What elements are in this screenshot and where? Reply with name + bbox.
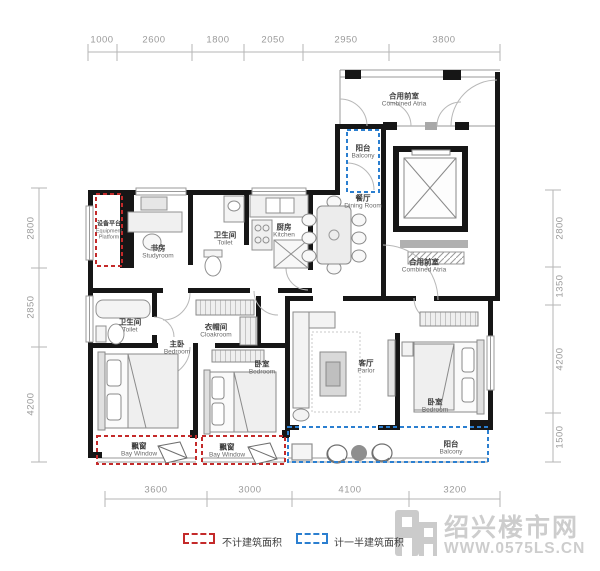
room-label-kitchen: 厨房 Kitchen xyxy=(273,223,295,240)
dim-left-3: 4200 xyxy=(26,392,37,415)
dim-bottom-2: 3000 xyxy=(238,485,261,496)
floor-plan-page: 1000 2600 1800 2050 2950 3800 3600 3000 … xyxy=(0,0,600,571)
room-label-bedroom-3: 卧室 Bedroom xyxy=(422,398,448,415)
legend-excluded-area-label: 不计建筑面积 xyxy=(222,534,282,549)
room-label-studyroom: 书房 Studyroom xyxy=(142,244,173,261)
dim-right-1: 2800 xyxy=(555,216,566,239)
furniture-master-bed xyxy=(98,352,178,430)
room-label-master-bedroom: 主卧 Bedroom xyxy=(164,340,190,357)
room-label-combined-atria-right: 合用前室 Combined Atria xyxy=(402,258,446,275)
site-logo-icon xyxy=(395,510,437,556)
dim-top-3: 1800 xyxy=(206,35,229,46)
dim-top-2: 2600 xyxy=(142,35,165,46)
legend-excluded-area-swatch xyxy=(183,533,215,544)
room-label-equipment-platform: 设备平台 Equipment Platform xyxy=(91,221,127,240)
room-label-toilet-2: 卫生间 Toilet xyxy=(119,318,142,335)
room-label-bedroom-2: 卧室 Bedroom xyxy=(249,360,275,377)
room-label-combined-atria-top: 合用前室 Combined Atria xyxy=(382,92,426,109)
dim-right-4: 1500 xyxy=(555,425,566,448)
dim-right-2: 1350 xyxy=(555,274,566,297)
room-label-bay-window-1: 飘窗 Bay Window xyxy=(121,442,157,459)
dim-top-4: 2050 xyxy=(261,35,284,46)
room-label-dining-room: 餐厅 Dining Room xyxy=(344,194,382,211)
room-label-cloakroom: 衣帽间 Cloakroom xyxy=(200,323,231,340)
dim-top-1: 1000 xyxy=(90,35,113,46)
dim-bottom-1: 3600 xyxy=(144,485,167,496)
floor-plan-drawing xyxy=(0,0,600,571)
legend-half-area-label: 计一半建筑面积 xyxy=(334,534,404,549)
watermark-site-name: 绍兴楼市网 xyxy=(444,508,579,544)
dim-bottom-4: 3200 xyxy=(443,485,466,496)
elevator xyxy=(404,150,456,218)
dim-bottom-3: 4100 xyxy=(338,485,361,496)
furniture-balcony xyxy=(292,444,392,463)
furniture-study xyxy=(128,197,182,250)
room-label-parlor: 客厅 Parlor xyxy=(357,359,374,376)
room-label-bay-window-2: 飘窗 Bay Window xyxy=(209,443,245,460)
dim-top-5: 2950 xyxy=(334,35,357,46)
room-label-balcony-bottom: 阳台 Balcony xyxy=(439,440,462,457)
dimension-lines xyxy=(31,44,561,507)
dim-left-2: 2850 xyxy=(26,295,37,318)
dim-top-6: 3800 xyxy=(432,35,455,46)
dim-right-3: 4200 xyxy=(555,347,566,370)
room-label-balcony-top: 阳台 Balcony xyxy=(351,144,374,161)
legend-half-area-swatch xyxy=(296,533,328,544)
watermark-site-url: WWW.0575LS.CN xyxy=(444,540,585,558)
furniture-parlor xyxy=(293,312,395,421)
dim-left-1: 2800 xyxy=(26,216,37,239)
room-label-toilet-1: 卫生间 Toilet xyxy=(214,231,237,248)
